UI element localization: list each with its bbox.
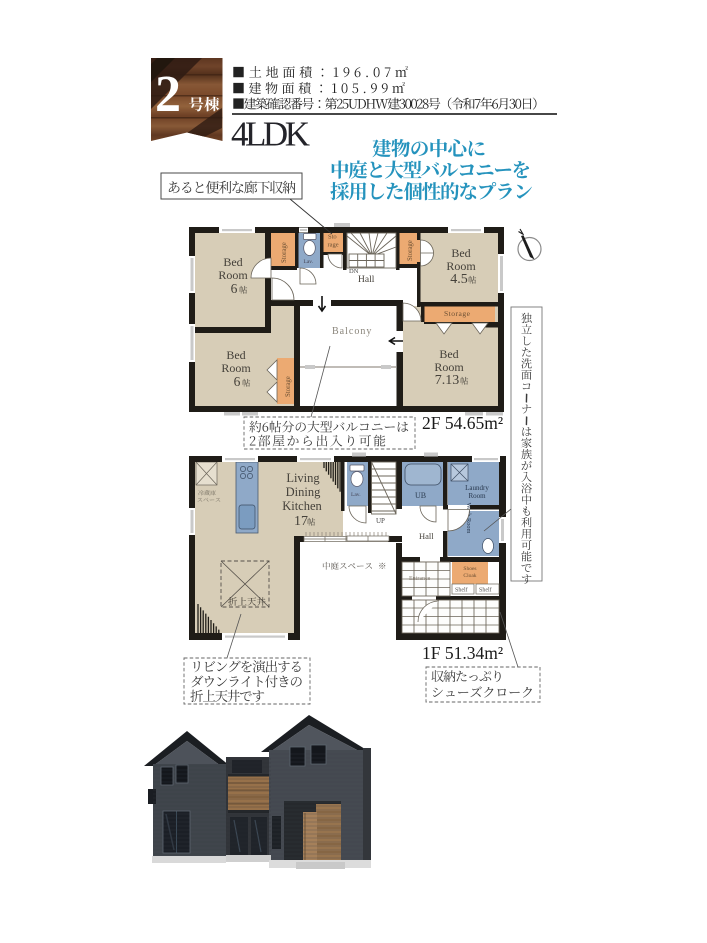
svg-text:6: 6 (234, 374, 241, 389)
svg-text:Entrance: Entrance (409, 576, 431, 582)
svg-text:Balcony: Balcony (332, 326, 372, 337)
svg-text:Lav.: Lav. (351, 492, 361, 498)
svg-text:Cloak: Cloak (463, 573, 476, 579)
svg-text:Room: Room (468, 492, 486, 500)
svg-text:Storage: Storage (285, 376, 292, 397)
svg-text:Bed: Bed (439, 347, 458, 361)
svg-text:2F 54.65m²: 2F 54.65m² (422, 413, 503, 433)
svg-text:Room: Room (446, 259, 476, 273)
svg-text:Storage: Storage (407, 240, 414, 261)
svg-text:Storage: Storage (444, 309, 471, 318)
svg-text:Living: Living (286, 471, 320, 485)
svg-text:rage: rage (328, 242, 339, 249)
svg-text:UP: UP (376, 517, 385, 525)
svg-text:Shelf: Shelf (479, 587, 492, 594)
svg-text:Hall: Hall (419, 531, 434, 541)
svg-text:UB: UB (415, 491, 426, 500)
svg-text:Storage: Storage (281, 242, 288, 263)
svg-text:Room: Room (221, 361, 251, 375)
svg-text:Lav.: Lav. (304, 259, 314, 265)
svg-text:Kitchen: Kitchen (282, 499, 322, 513)
svg-text:Bed: Bed (223, 255, 242, 269)
svg-text:Bed: Bed (451, 246, 470, 260)
svg-text:7.13: 7.13 (435, 373, 460, 388)
svg-text:2: 2 (155, 66, 181, 123)
svg-text:Room: Room (218, 268, 248, 282)
svg-text:17: 17 (294, 514, 308, 529)
svg-text:Room: Room (434, 360, 464, 374)
svg-text:4.5: 4.5 (450, 272, 468, 287)
svg-text:6: 6 (231, 281, 238, 296)
svg-text:DN: DN (349, 268, 359, 275)
svg-text:Laundry: Laundry (465, 484, 489, 492)
svg-text:Hall: Hall (358, 275, 375, 285)
svg-text:Sto: Sto (328, 234, 337, 241)
svg-text:4LDK: 4LDK (231, 115, 310, 154)
svg-text:1F 51.34m²: 1F 51.34m² (422, 643, 503, 663)
svg-text:Shelf: Shelf (455, 587, 468, 594)
svg-text:Dining: Dining (286, 485, 321, 499)
svg-text:Bed: Bed (226, 348, 245, 362)
svg-text:Shoes: Shoes (463, 566, 476, 572)
